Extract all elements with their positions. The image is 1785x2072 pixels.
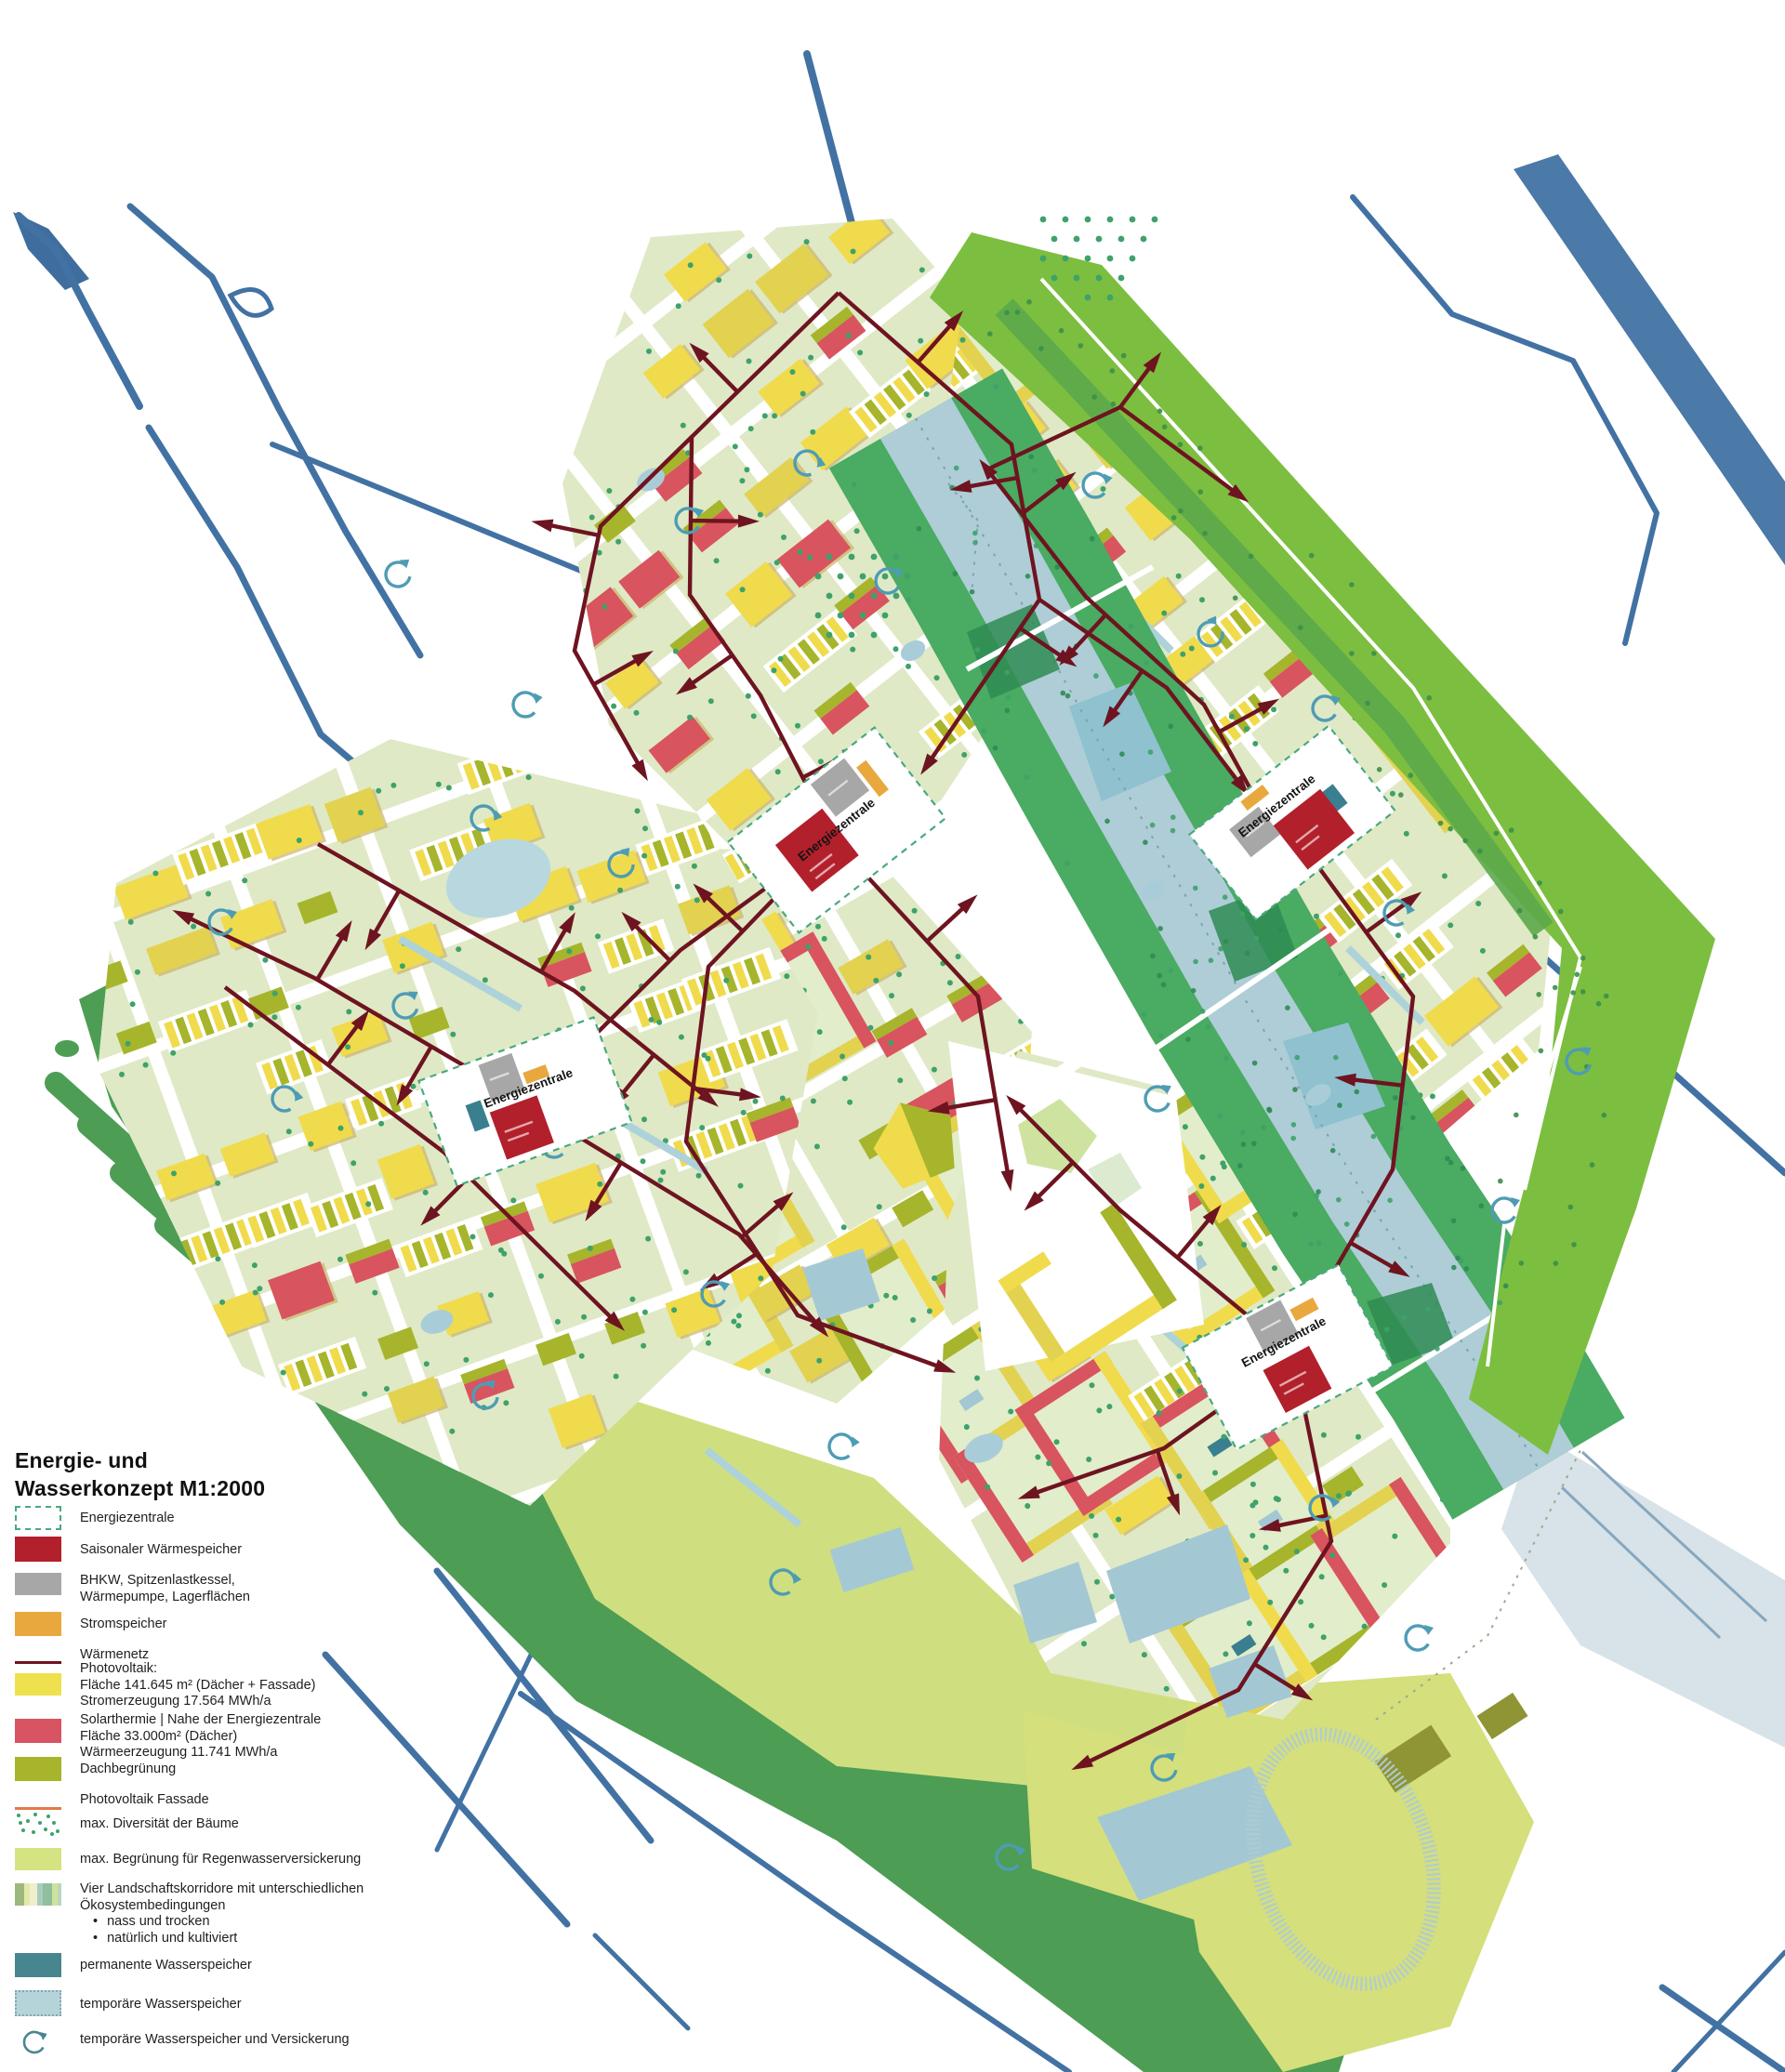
- site-plan-map: EnergiezentraleEnergiezentraleEnergiezen…: [0, 0, 1785, 2072]
- masterplan-canvas: EnergiezentraleEnergiezentraleEnergiezen…: [0, 0, 1785, 2072]
